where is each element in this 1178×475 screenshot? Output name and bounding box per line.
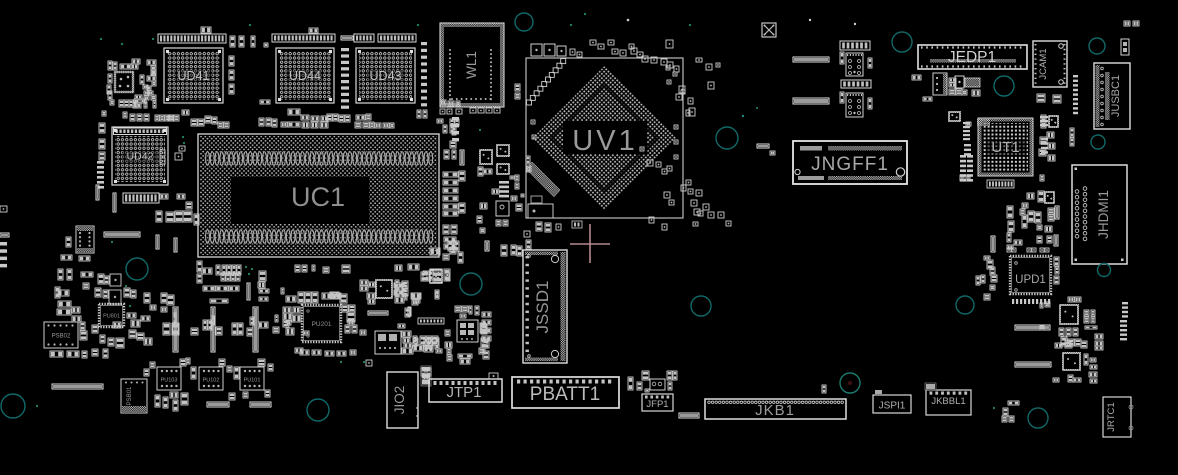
svg-text:UT1: UT1	[991, 139, 1019, 156]
svg-text:PU103: PU103	[161, 378, 178, 384]
svg-text:PSB02: PSB02	[52, 334, 71, 340]
svg-text:JTP1: JTP1	[446, 384, 481, 401]
svg-text:UD44: UD44	[289, 69, 321, 83]
svg-text:JSSD1: JSSD1	[533, 281, 552, 334]
svg-text:PU801: PU801	[103, 314, 120, 320]
svg-text:JFP1: JFP1	[646, 399, 668, 410]
svg-text:JIO2: JIO2	[392, 386, 407, 415]
svg-text:JNGFF1: JNGFF1	[811, 154, 889, 175]
svg-text:UPD1: UPD1	[1015, 274, 1046, 286]
svg-text:JSPI1: JSPI1	[879, 401, 906, 412]
svg-text:PU102: PU102	[203, 378, 220, 384]
svg-text:PSB01: PSB01	[127, 386, 133, 405]
svg-text:JCAM1: JCAM1	[1038, 48, 1049, 79]
svg-text:UV1: UV1	[572, 125, 637, 157]
svg-text:WL1: WL1	[464, 51, 479, 79]
svg-text:UD42: UD42	[127, 151, 154, 163]
svg-text:UC1: UC1	[291, 182, 345, 212]
svg-text:PU201: PU201	[312, 321, 332, 328]
svg-text:UD43: UD43	[370, 69, 402, 83]
svg-text:PBATT1: PBATT1	[530, 384, 600, 405]
svg-text:JUSBC1: JUSBC1	[1110, 75, 1122, 117]
svg-text:PU101: PU101	[244, 378, 261, 384]
svg-text:UD41: UD41	[178, 69, 210, 83]
svg-text:JKB1: JKB1	[755, 402, 795, 419]
svg-text:JRTC1: JRTC1	[1106, 402, 1117, 431]
svg-text:JKBBL1: JKBBL1	[931, 396, 965, 407]
svg-text:JEDP1: JEDP1	[948, 49, 996, 66]
svg-text:JHDMI1: JHDMI1	[1096, 190, 1111, 239]
